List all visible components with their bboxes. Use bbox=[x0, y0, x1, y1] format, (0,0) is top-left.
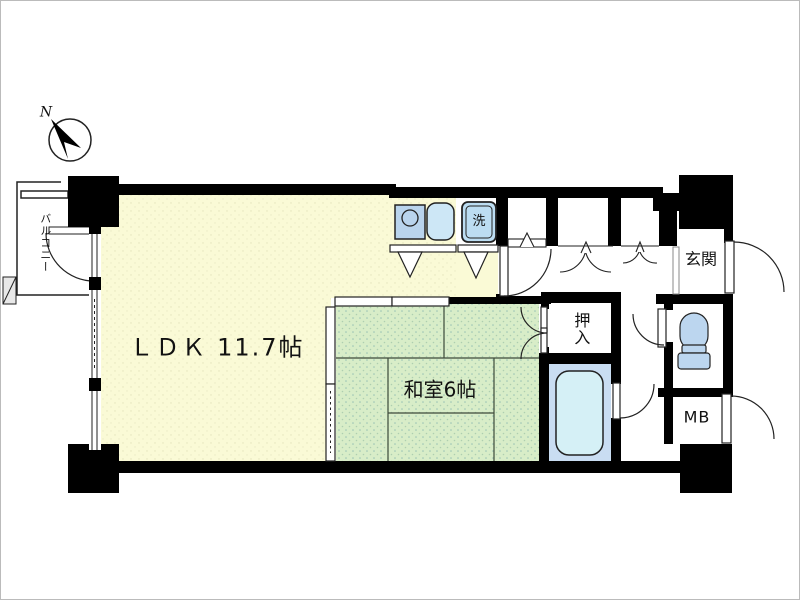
kitchen-counter bbox=[395, 203, 454, 240]
bathtub-icon bbox=[556, 371, 603, 455]
ldk-label: ＬＤＫ 11.7帖 bbox=[129, 335, 304, 360]
window-glyphs bbox=[89, 234, 101, 450]
floorplan-image: N バルコニー ＬＤＫ 11.7帖 和室6帖 押入 玄関 MB 洗 bbox=[0, 0, 800, 600]
north-arrow-icon bbox=[49, 119, 91, 161]
pillar-bottom-right bbox=[680, 444, 732, 493]
sink-icon bbox=[427, 203, 454, 240]
meter-box-label: MB bbox=[684, 410, 711, 427]
oshiire-label: 押入 bbox=[572, 312, 589, 346]
genkan-step bbox=[673, 247, 679, 294]
compass-north-label: N bbox=[40, 106, 52, 121]
closet-door-arcs bbox=[508, 233, 659, 272]
genkan-label: 玄関 bbox=[685, 252, 717, 269]
balcony-label: バルコニー bbox=[39, 213, 51, 273]
laundry-label: 洗 bbox=[472, 215, 485, 229]
washitsu-label: 和室6帖 bbox=[404, 380, 477, 401]
pillar-top-right bbox=[679, 175, 733, 229]
pillar-top-left bbox=[68, 176, 119, 227]
toilet-icon bbox=[678, 313, 710, 369]
floorplan-drawing bbox=[1, 1, 799, 599]
